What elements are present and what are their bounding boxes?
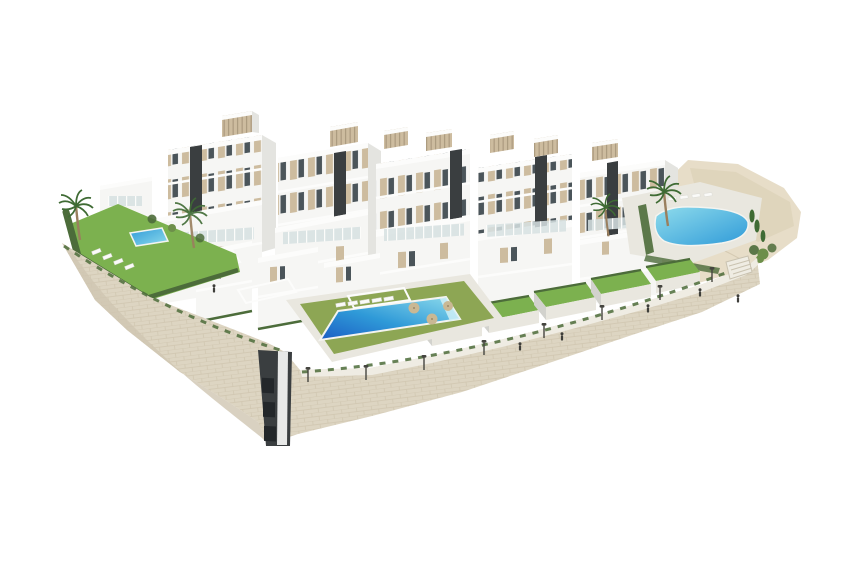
roof-bulkhead [426, 129, 452, 151]
roof-bulkhead [330, 122, 358, 147]
roof-bulkhead [490, 131, 514, 153]
render-canvas: Aerial render of a white modern apartmen… [0, 0, 851, 582]
communal-pool-right [655, 207, 748, 246]
roof-bulkhead [222, 111, 259, 137]
architecture-render: Aerial render of a white modern apartmen… [0, 0, 851, 582]
roof-bulkhead [534, 135, 558, 157]
roof-bulkhead [384, 127, 408, 149]
roof-bulkhead [592, 139, 618, 161]
